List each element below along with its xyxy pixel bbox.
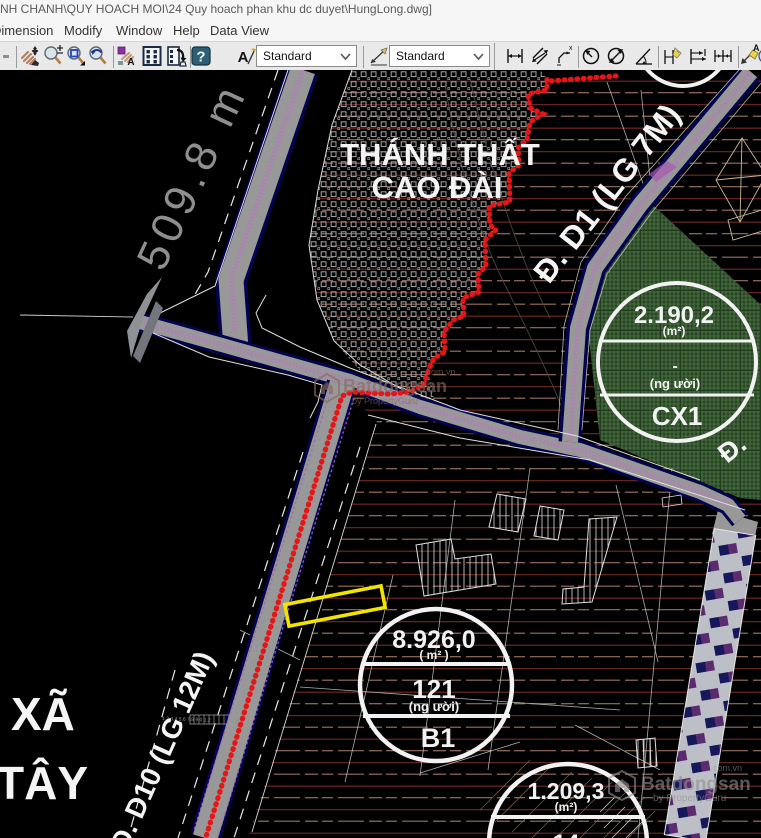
svg-text:(m²): (m²) xyxy=(555,800,578,814)
svg-text:(m²): (m²) xyxy=(663,324,686,338)
svg-text:by PropertyGuru: by PropertyGuru xyxy=(653,793,726,804)
svg-text:.com.vn: .com.vn xyxy=(424,367,456,377)
svg-text:Standard: Standard xyxy=(396,49,445,63)
svg-text:com.vn: com.vn xyxy=(713,763,742,773)
svg-text:by PropertyGuru: by PropertyGuru xyxy=(352,396,418,406)
svg-text:A: A xyxy=(753,43,760,53)
svg-text:THÁNH THẤT: THÁNH THẤT xyxy=(340,137,540,172)
svg-text:(ng ười): (ng ười) xyxy=(650,376,700,391)
svg-text:A: A xyxy=(238,49,249,66)
svg-text:( m² ): ( m² ) xyxy=(419,648,448,662)
svg-text:B1: B1 xyxy=(421,723,456,753)
svg-text:TÂY: TÂY xyxy=(0,757,88,809)
svg-text:CX1: CX1 xyxy=(652,401,703,431)
svg-text:(ng ười): (ng ười) xyxy=(409,699,459,714)
svg-text:A: A xyxy=(127,57,134,68)
svg-text:CAO ĐÀI: CAO ĐÀI xyxy=(372,170,503,205)
svg-text:Batdongsan: Batdongsan xyxy=(343,376,447,396)
svg-text:Batdongsan: Batdongsan xyxy=(641,774,751,795)
svg-text:x: x xyxy=(569,45,573,52)
svg-text:XÃ: XÃ xyxy=(11,688,75,740)
svg-text:14: 14 xyxy=(553,830,580,838)
svg-text:?: ? xyxy=(196,49,205,66)
svg-text:Standard: Standard xyxy=(263,49,312,63)
svg-text:-: - xyxy=(672,358,677,375)
